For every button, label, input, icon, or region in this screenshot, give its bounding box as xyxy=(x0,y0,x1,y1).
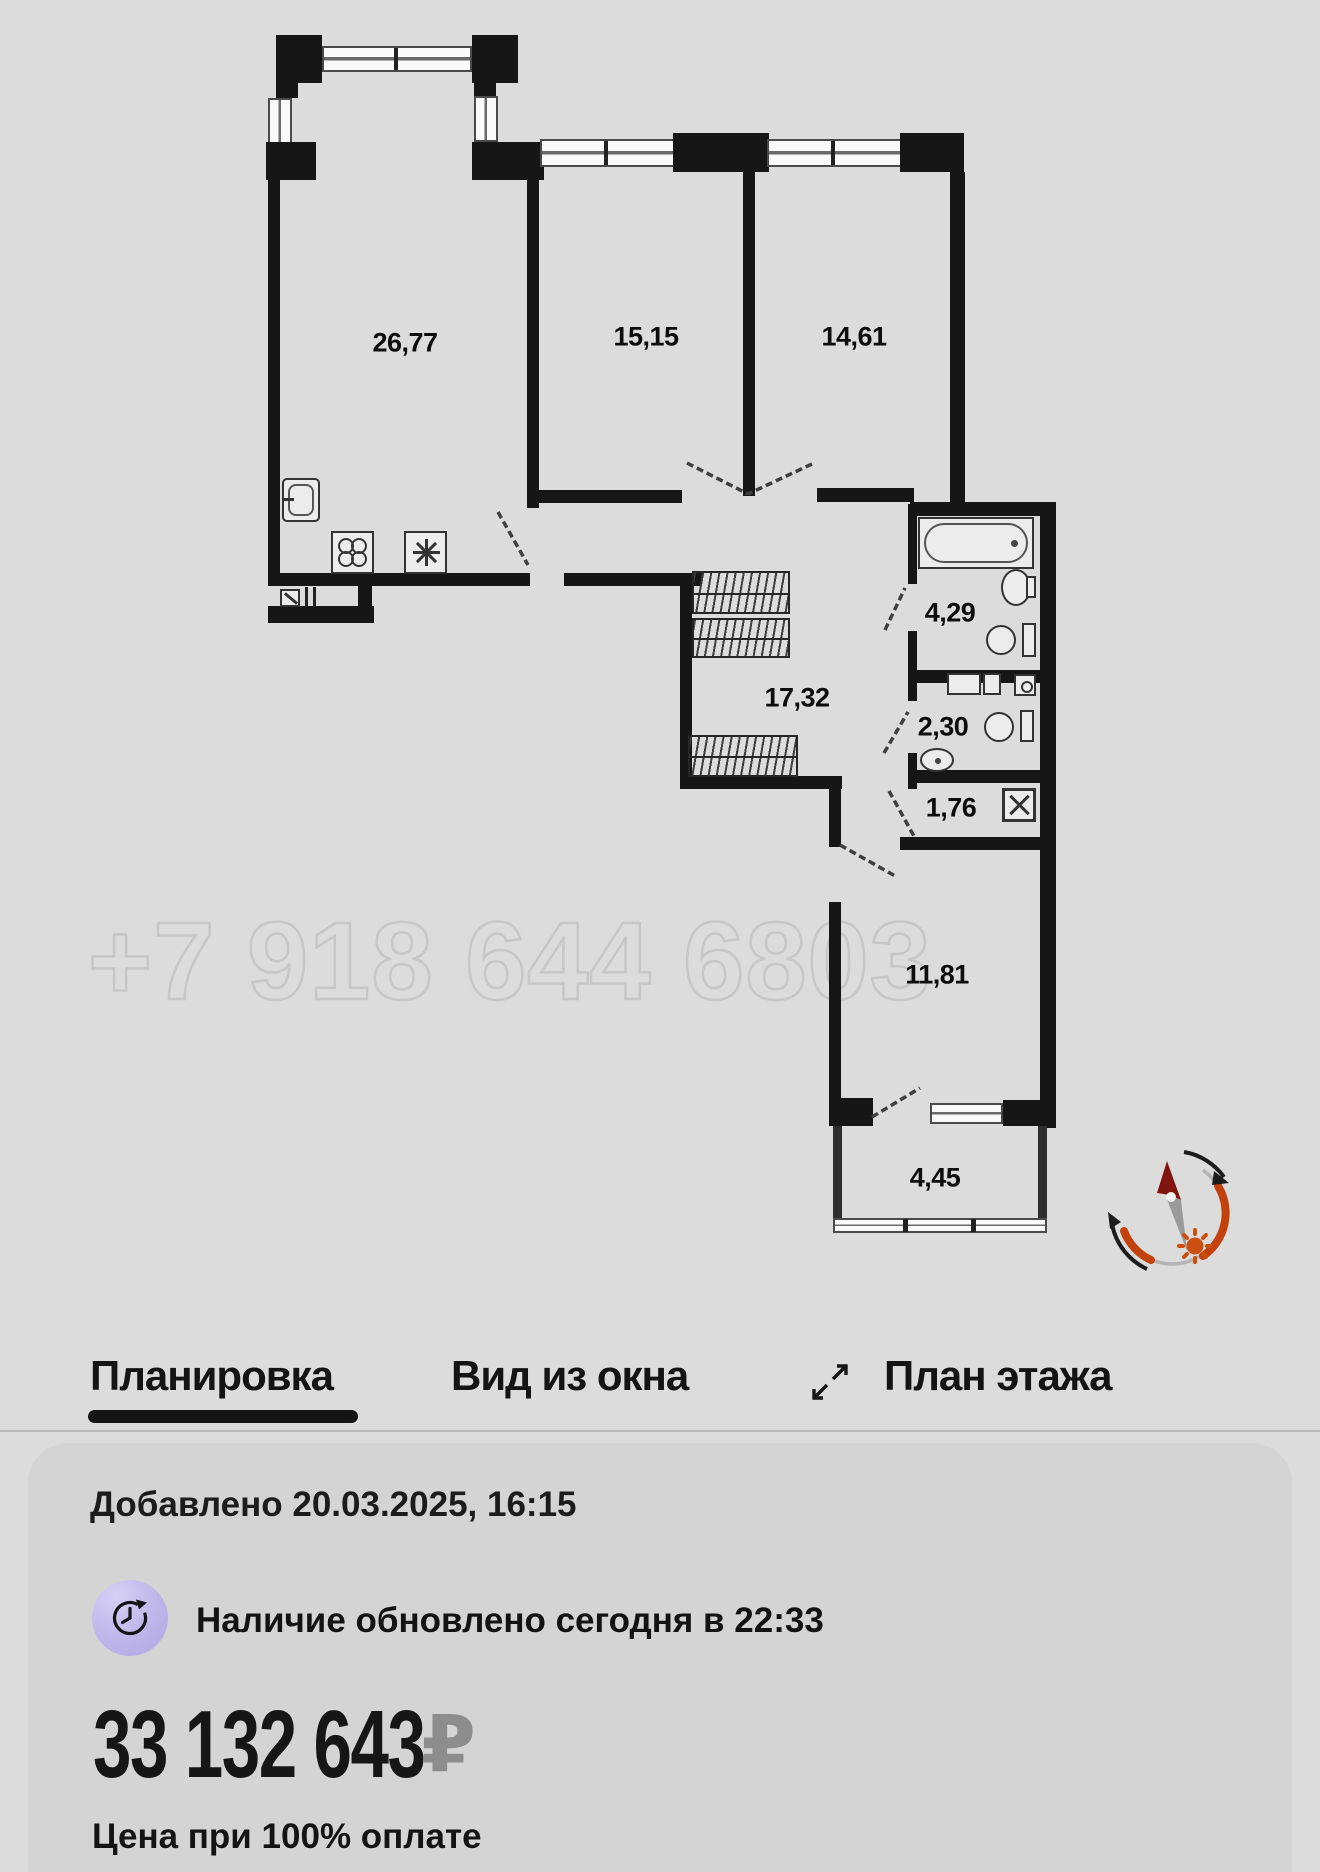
room-area-label-storage: 1,76 xyxy=(926,793,977,824)
floor-plan-image[interactable]: +7 918 644 6803 xyxy=(0,0,1320,1330)
added-date-text: Добавлено 20.03.2025, 16:15 xyxy=(90,1485,577,1525)
tab-window-view[interactable]: Вид из окна xyxy=(451,1352,688,1400)
price-note-text: Цена при 100% оплате xyxy=(92,1817,482,1857)
room-area-label-hallway: 11,81 xyxy=(905,960,969,991)
price-value: 33 132 643 xyxy=(93,1697,425,1793)
room-area-label-bedroom2: 14,61 xyxy=(821,322,886,353)
availability-text: Наличие обновлено сегодня в 22:33 xyxy=(196,1601,824,1641)
expand-icon[interactable] xyxy=(806,1358,854,1406)
room-area-label-wc: 2,30 xyxy=(918,712,969,743)
clock-refresh-icon xyxy=(92,1580,168,1656)
room-area-label-bathroom: 4,29 xyxy=(925,598,976,629)
currency-symbol: ₽ xyxy=(421,1697,475,1793)
divider xyxy=(0,1430,1320,1432)
door-swing-lines xyxy=(0,0,1320,1330)
room-area-label-bedroom1: 15,15 xyxy=(613,322,678,353)
tab-layout[interactable]: Планировка xyxy=(90,1352,333,1400)
floor-plan-drawing: 26,77 15,15 14,61 4,29 17,32 2,30 1,76 1… xyxy=(0,0,1320,1330)
listing-card: Добавлено 20.03.2025, 16:15 Наличие обно… xyxy=(28,1443,1292,1872)
active-tab-underline xyxy=(88,1410,358,1423)
room-area-label-balcony: 4,45 xyxy=(910,1163,961,1194)
room-area-label-corridor: 17,32 xyxy=(764,683,829,714)
price-row: 33 132 643 ₽ xyxy=(93,1697,476,1793)
tab-floor-plan[interactable]: План этажа xyxy=(884,1352,1111,1400)
compass-sun-indicator xyxy=(1108,1148,1238,1278)
room-area-label-living: 26,77 xyxy=(372,328,437,359)
